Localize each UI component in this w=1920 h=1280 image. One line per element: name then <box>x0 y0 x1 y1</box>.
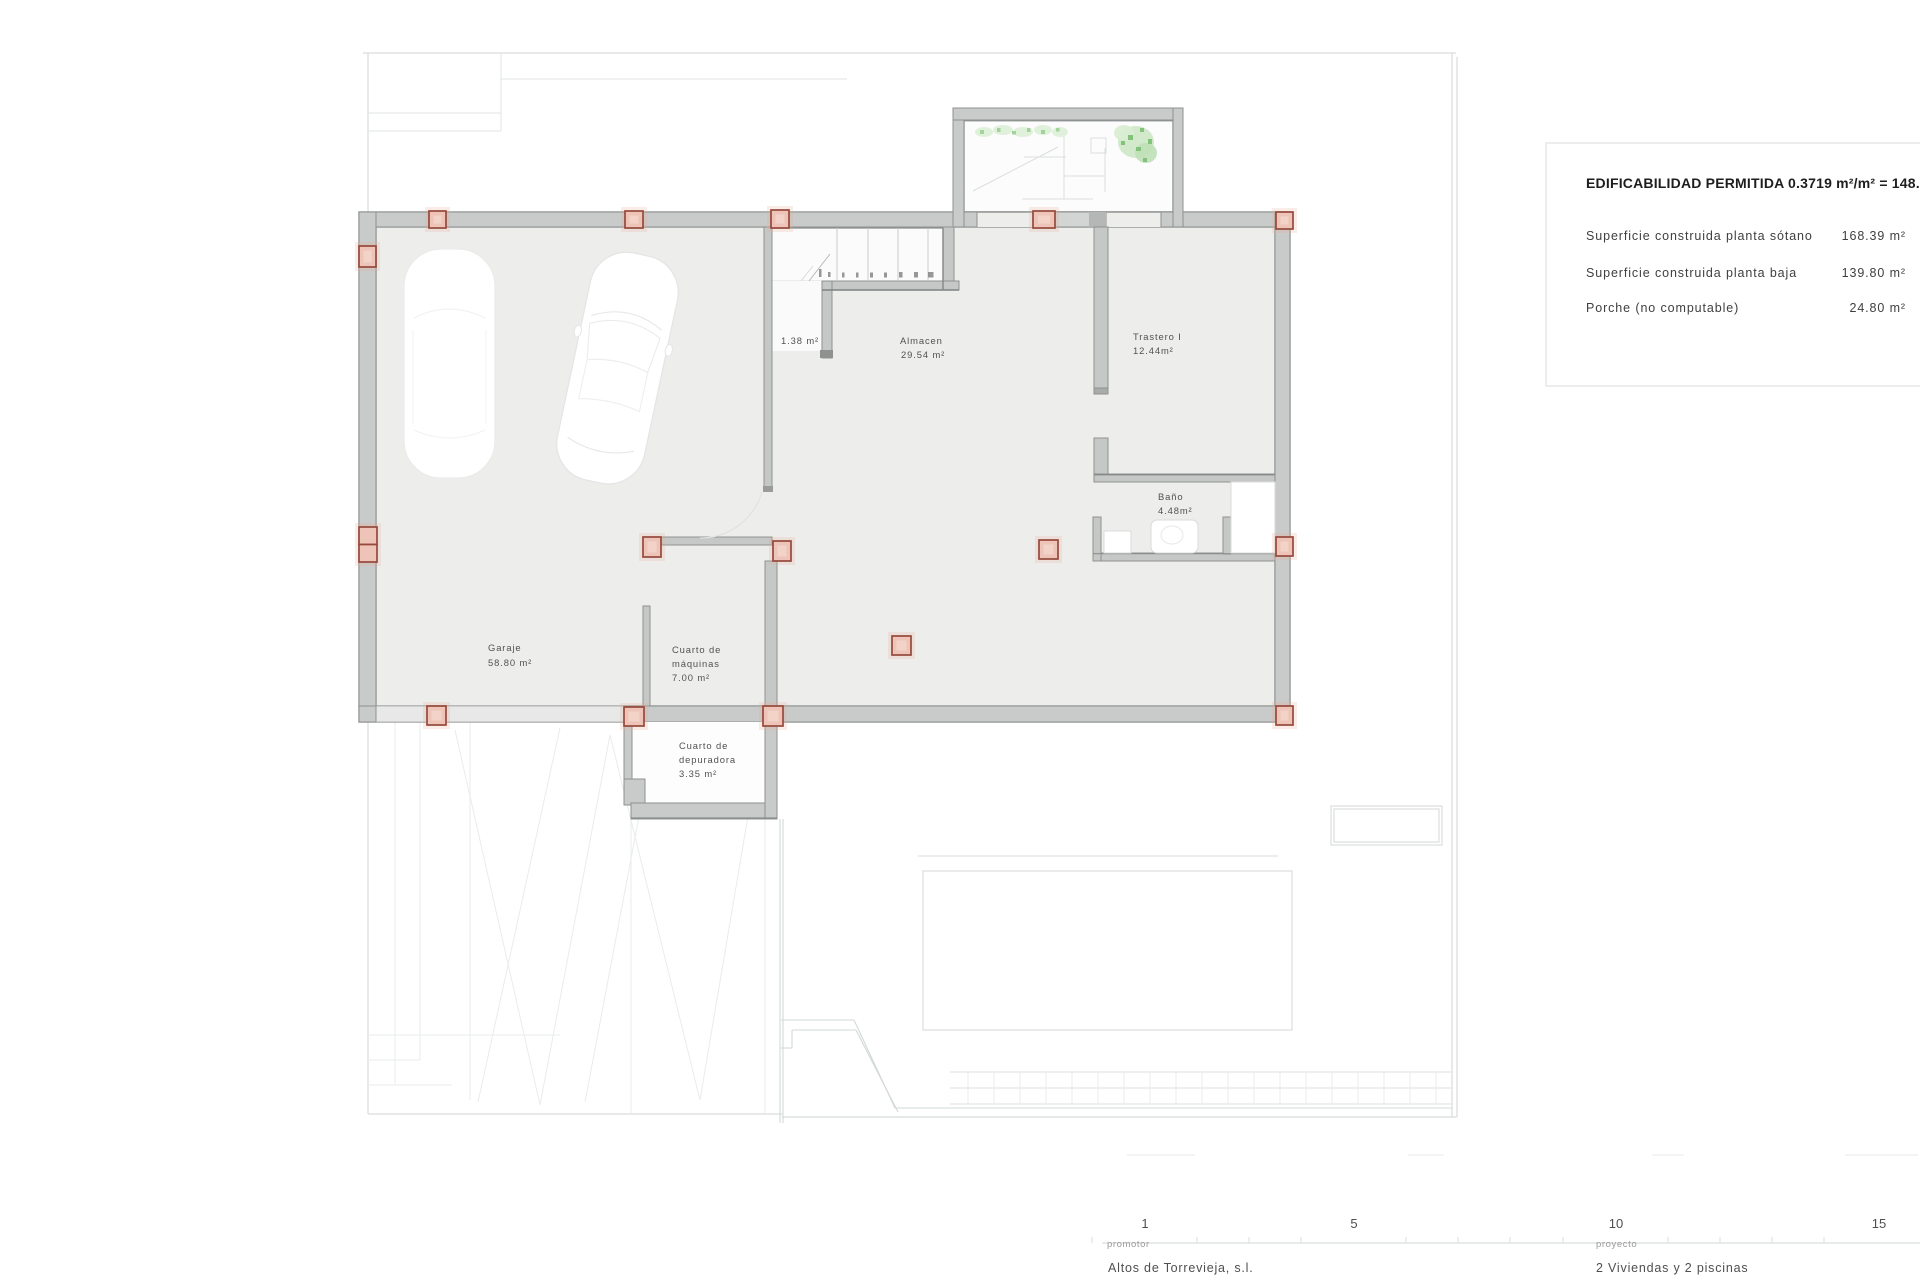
svg-text:2 Viviendas y 2 piscinas: 2 Viviendas y 2 piscinas <box>1596 1261 1748 1275</box>
svg-text:5: 5 <box>1350 1216 1357 1231</box>
svg-text:Trastero I: Trastero I <box>1133 331 1182 342</box>
svg-text:24.80 m²: 24.80 m² <box>1849 301 1906 315</box>
svg-text:Cuarto de: Cuarto de <box>672 644 721 655</box>
svg-text:58.80 m²: 58.80 m² <box>488 657 532 668</box>
svg-text:Baño: Baño <box>1158 491 1184 502</box>
svg-text:1: 1 <box>1141 1216 1148 1231</box>
svg-text:Superficie construida planta b: Superficie construida planta baja <box>1586 266 1797 280</box>
svg-text:15: 15 <box>1872 1216 1886 1231</box>
svg-text:3.35 m²: 3.35 m² <box>679 768 717 779</box>
svg-text:139.80 m²: 139.80 m² <box>1842 266 1906 280</box>
svg-text:proyecto: proyecto <box>1596 1239 1637 1250</box>
svg-text:Garaje: Garaje <box>488 642 522 653</box>
svg-text:promotor: promotor <box>1107 1239 1150 1250</box>
svg-text:Cuarto de: Cuarto de <box>679 740 728 751</box>
svg-text:Almacen: Almacen <box>900 335 943 346</box>
svg-text:7.00 m²: 7.00 m² <box>672 672 710 683</box>
svg-text:Porche (no computable): Porche (no computable) <box>1586 301 1739 315</box>
svg-text:10: 10 <box>1609 1216 1623 1231</box>
svg-text:Superficie construida planta s: Superficie construida planta sótano <box>1586 229 1813 243</box>
svg-text:1.38 m²: 1.38 m² <box>781 335 819 346</box>
svg-text:EDIFICABILIDAD PERMITIDA 0.371: EDIFICABILIDAD PERMITIDA 0.3719 m²/m² = … <box>1586 175 1920 191</box>
svg-text:Altos de Torrevieja, s.l.: Altos de Torrevieja, s.l. <box>1108 1261 1254 1275</box>
svg-text:12.44m²: 12.44m² <box>1133 345 1174 356</box>
svg-text:168.39 m²: 168.39 m² <box>1842 229 1906 243</box>
svg-text:4.48m²: 4.48m² <box>1158 505 1193 516</box>
svg-text:depuradora: depuradora <box>679 754 736 765</box>
svg-text:29.54 m²: 29.54 m² <box>901 349 945 360</box>
svg-text:máquinas: máquinas <box>672 658 720 669</box>
